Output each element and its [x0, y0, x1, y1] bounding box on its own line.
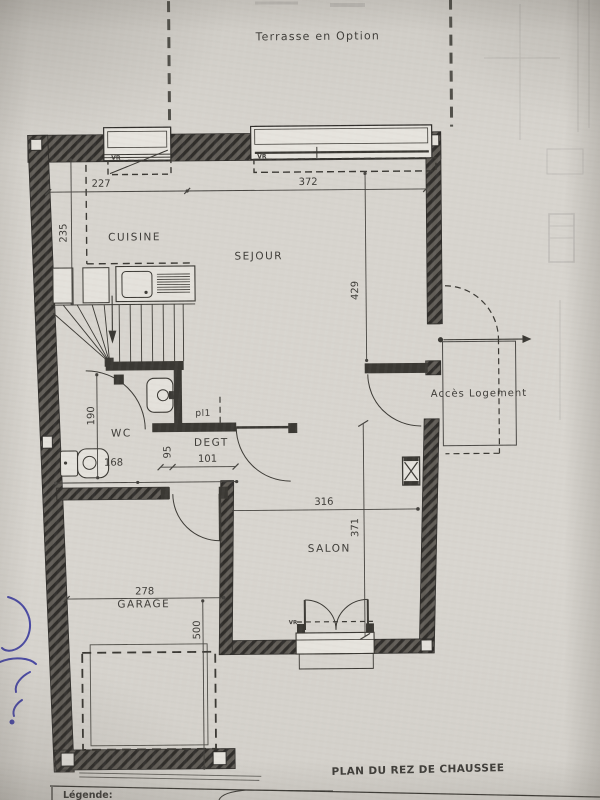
- wall-garage-top: [57, 487, 169, 500]
- pen-scribble: [0, 597, 36, 725]
- entry-arrow: [443, 339, 522, 340]
- dim-372: 372: [299, 177, 318, 188]
- degt-salon-door-swing: [236, 427, 290, 481]
- entry-opening: [427, 324, 440, 361]
- doors: [86, 368, 422, 542]
- entry-door-swing: [368, 374, 421, 426]
- room-label-pl1: pl1: [195, 409, 211, 419]
- terrace-label: Terrasse en Option: [255, 29, 381, 43]
- dim-371: 371: [350, 518, 361, 537]
- staircase: [51, 295, 196, 367]
- window-label-vr1: VR: [111, 155, 121, 162]
- toilet-tank: [60, 451, 77, 476]
- room-label-wc: WC: [111, 427, 132, 439]
- plan-area: Terrasse en Option: [0, 0, 600, 800]
- window-label-vr2: VR: [257, 153, 267, 160]
- exterior-step: [299, 653, 373, 669]
- wall-garage-bottom: [54, 749, 235, 771]
- window-cuisine: VR: [104, 127, 171, 175]
- paper-bleed-through: [255, 0, 589, 420]
- room-label-degt: DEGT: [194, 437, 229, 449]
- wall-right-upper: [426, 132, 443, 324]
- dim-500: 500: [192, 620, 203, 639]
- dim-278: 278: [135, 586, 154, 597]
- dim-227: 227: [92, 179, 111, 190]
- room-label-garage: GARAGE: [117, 598, 170, 610]
- legend-title: Légende:: [63, 790, 113, 800]
- dim-95: 95: [162, 446, 173, 459]
- dim-101: 101: [198, 454, 217, 465]
- dim-190: 190: [86, 406, 97, 425]
- terrace-dashed-lines: [169, 0, 452, 137]
- apron-lines: [79, 771, 261, 782]
- dimension-labels: 227 372 235 429 190 168 95 101 316 371 2…: [58, 176, 364, 640]
- dim-168: 168: [104, 458, 123, 469]
- room-label-cuisine: CUISINE: [108, 231, 161, 243]
- room-label-sejour: SEJOUR: [234, 250, 283, 262]
- dim-235: 235: [58, 223, 69, 242]
- wall-wc-east: [174, 368, 183, 426]
- garage-parking-zone: [82, 644, 216, 750]
- window-label-vr3: VR: [289, 620, 298, 626]
- entry-door-dashed-swing: [445, 285, 498, 338]
- window-sejour: VR: [251, 125, 436, 173]
- wall-degt-north: [152, 423, 236, 433]
- wall-right-stub: [426, 361, 441, 375]
- dim-429: 429: [350, 281, 361, 300]
- floor-plan-photo: Terrasse en Option: [0, 0, 600, 800]
- wall-entry-north: [365, 363, 428, 374]
- garage-door-swing: [173, 494, 220, 541]
- room-label-acces: Accès Logement: [431, 387, 527, 400]
- electrical-panel: [403, 457, 420, 485]
- legend-box-border: [50, 786, 600, 800]
- floor-plan-svg: Terrasse en Option: [0, 0, 600, 800]
- wall-stair-bottom: [106, 361, 184, 371]
- wall-right-lower: [417, 419, 441, 653]
- plan-title: PLAN DU REZ DE CHAUSSEE: [331, 762, 504, 778]
- kitchen-base-unit: [83, 268, 109, 303]
- kitchen-base-unit: [53, 268, 73, 303]
- french-door: [296, 599, 375, 669]
- jamb: [161, 487, 170, 499]
- room-label-salon: SALON: [308, 543, 351, 555]
- kitchen-sink-unit: [53, 266, 195, 303]
- entry-exterior: [437, 285, 532, 454]
- dim-316: 316: [314, 497, 333, 508]
- stair-direction-arrow: [108, 331, 116, 344]
